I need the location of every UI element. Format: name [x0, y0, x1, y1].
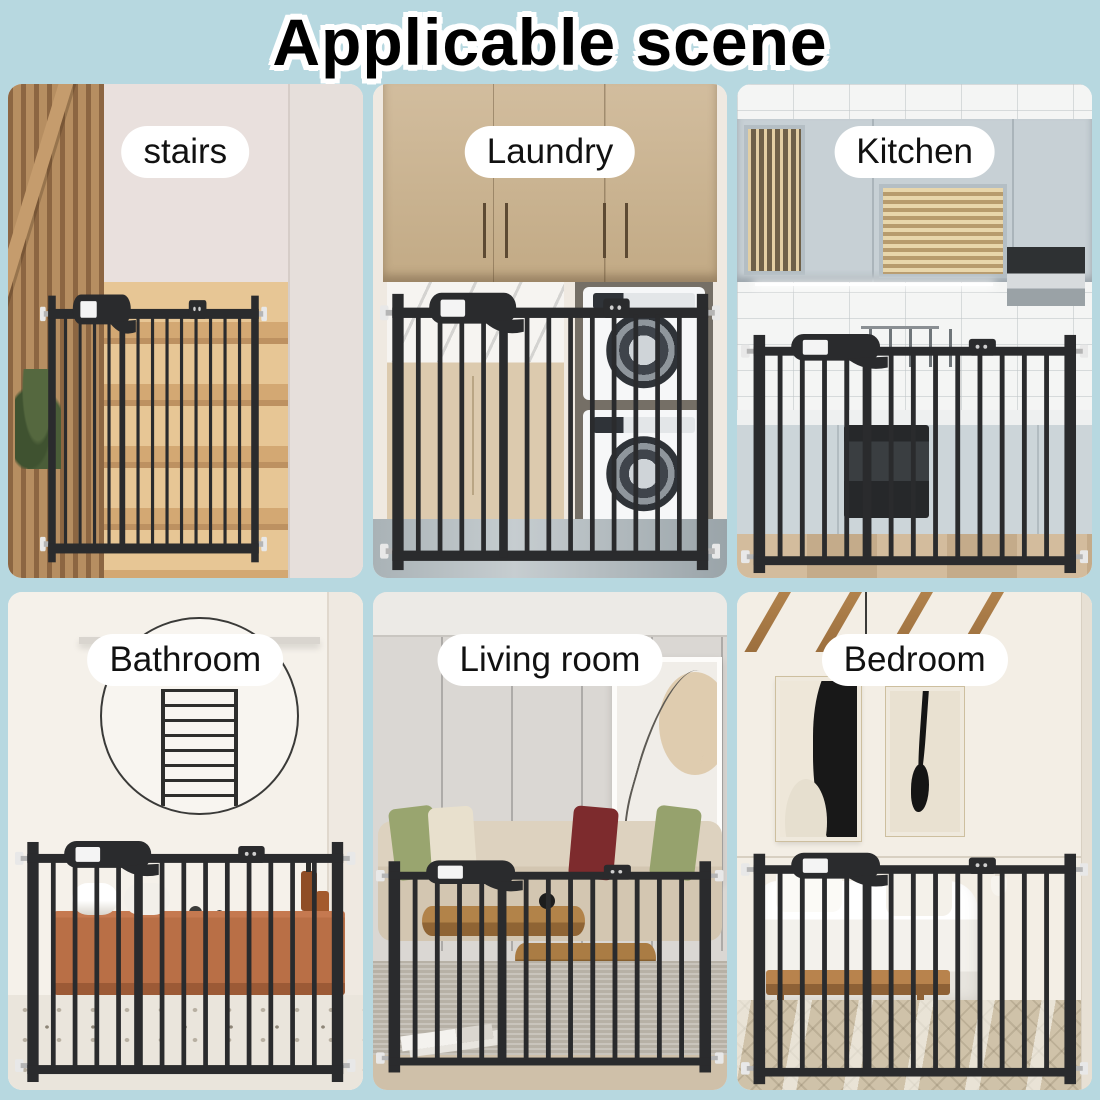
roller-cabinet	[879, 184, 1007, 279]
room-label-bathroom: Bathroom	[87, 634, 283, 686]
room-label-kitchen: Kitchen	[834, 126, 995, 178]
ceiling	[373, 592, 728, 637]
towel-ladder	[161, 689, 239, 806]
panel-bathroom: Bathroom	[8, 592, 363, 1090]
safety-gate-image	[380, 287, 720, 574]
under-cabinet-light	[755, 283, 993, 286]
upper-cabinets	[383, 84, 716, 282]
safety-gate-image	[741, 329, 1089, 576]
page-title: Applicable scene	[0, 0, 1100, 84]
safety-gate-image	[376, 856, 724, 1075]
product-image: Applicable scene stairs	[0, 0, 1100, 1090]
ceiling-beam	[745, 592, 806, 652]
panel-kitchen: Kitchen	[737, 84, 1092, 578]
glass-cabinet	[744, 125, 804, 275]
scene-grid: stairs Laundry	[0, 84, 1100, 1090]
safety-gate-image	[15, 836, 355, 1085]
panel-living-room: Living room	[373, 592, 728, 1090]
room-label-living-room: Living room	[438, 634, 663, 686]
safety-gate-image	[741, 848, 1089, 1087]
range-hood	[1007, 247, 1085, 306]
room-label-bedroom: Bedroom	[822, 634, 1008, 686]
panel-laundry: Laundry	[373, 84, 728, 578]
panel-bedroom: Bedroom	[737, 592, 1092, 1090]
safety-gate-image	[40, 289, 267, 566]
room-label-laundry: Laundry	[465, 126, 635, 178]
room-label-stairs: stairs	[122, 126, 250, 178]
side-wall	[288, 84, 362, 578]
wall-art	[886, 687, 964, 836]
back-wall	[104, 84, 288, 291]
panel-stairs: stairs	[8, 84, 363, 578]
wall-art	[776, 677, 861, 841]
